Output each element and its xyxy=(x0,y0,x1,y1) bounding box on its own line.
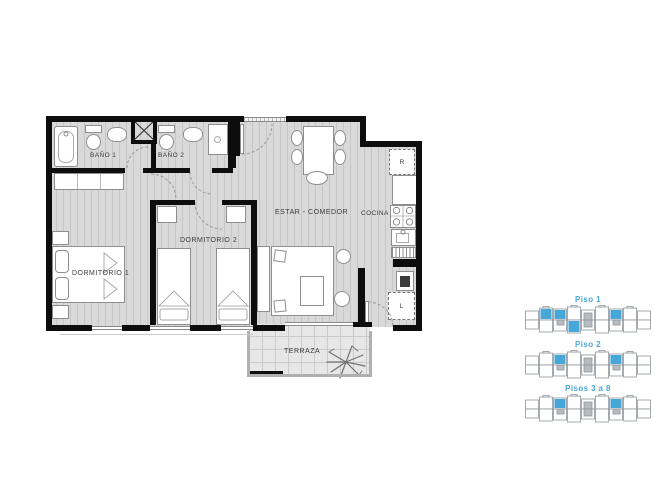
wall-segment xyxy=(46,116,244,122)
side-table xyxy=(334,291,350,307)
wall-segment xyxy=(251,200,257,325)
dining-table xyxy=(303,126,334,175)
floor-key-title: Pisos 3 a 8 xyxy=(524,384,652,393)
floor-key-item: Pisos 3 a 8 xyxy=(524,384,652,429)
wall-segment xyxy=(416,141,422,331)
wall-segment xyxy=(143,168,157,173)
sofa-cushion xyxy=(273,299,286,312)
kitchen-sink-basin xyxy=(396,233,409,243)
terrace-railing xyxy=(247,374,372,377)
toilet-bowl xyxy=(86,134,101,150)
floor-key-item: Piso 1 xyxy=(524,295,652,340)
toilet-bowl xyxy=(159,134,174,150)
wall-segment xyxy=(358,268,365,325)
sink xyxy=(107,127,127,142)
dining-chair xyxy=(306,171,328,185)
wall-segment xyxy=(46,116,52,331)
toilet-tank xyxy=(85,125,102,133)
wall-segment xyxy=(190,325,221,331)
terrace-sliding-door xyxy=(285,322,353,326)
dining-chair xyxy=(334,130,346,146)
kitchen-counter xyxy=(392,175,417,205)
sofa-cushion xyxy=(273,249,287,263)
room-label-bano1: BAÑO 1 xyxy=(90,152,116,159)
wall-segment xyxy=(150,200,195,205)
closet xyxy=(157,206,177,223)
room-label-dormitorio2: DORMITORIO 2 xyxy=(180,237,237,244)
single-bed xyxy=(216,248,250,325)
wall-segment xyxy=(46,325,92,331)
dining-chair xyxy=(334,149,346,165)
wall-segment xyxy=(157,168,190,173)
dining-chair xyxy=(291,149,303,165)
window xyxy=(150,326,190,330)
room-label-estar-comedor: ESTAR - COMEDOR xyxy=(275,209,348,216)
dish-rack xyxy=(391,247,416,258)
water-heater-core xyxy=(400,276,410,287)
wall-segment xyxy=(212,168,233,173)
refrigerator: R xyxy=(389,149,415,175)
wall-segment xyxy=(360,141,422,147)
pillow xyxy=(55,250,69,273)
nightstand xyxy=(52,231,69,245)
stove xyxy=(390,205,416,228)
single-bed xyxy=(157,248,191,325)
room-label-terraza: TERRAZA xyxy=(284,348,320,355)
wall-segment xyxy=(234,122,240,156)
window-sill-line xyxy=(60,334,253,335)
terrace-railing xyxy=(247,331,250,375)
wall-segment xyxy=(286,116,366,122)
wall-segment xyxy=(122,325,150,331)
floor-cutout xyxy=(366,108,430,142)
window xyxy=(221,326,253,330)
closet-door-line xyxy=(100,174,101,189)
door-leaf xyxy=(240,124,244,154)
side-table xyxy=(336,249,351,264)
wall-segment xyxy=(52,168,125,173)
floorplan-page: R L xyxy=(0,0,667,500)
window xyxy=(92,326,122,330)
shower-drain xyxy=(214,136,221,143)
wall-segment xyxy=(150,200,156,325)
toilet-tank xyxy=(158,125,175,133)
closet xyxy=(54,173,124,190)
pillow xyxy=(55,277,69,300)
floor-key-title: Piso 2 xyxy=(524,340,652,349)
coffee-table xyxy=(300,276,324,306)
building-footprint-diagram xyxy=(525,394,651,424)
laundry-space: L xyxy=(388,292,415,320)
building-footprint-diagram xyxy=(525,305,651,335)
floor-key-item: Piso 2 xyxy=(524,340,652,385)
closet-door-line xyxy=(77,174,78,189)
laundry-letter: L xyxy=(389,293,414,319)
wall-segment xyxy=(393,325,422,331)
building-footprint-diagram xyxy=(525,350,651,380)
sofa-back xyxy=(257,246,270,312)
sink xyxy=(183,127,203,142)
room-label-dormitorio1: DORMITORIO 1 xyxy=(72,270,129,277)
room-label-cocina: COCINA xyxy=(361,210,389,217)
wall-segment xyxy=(151,144,156,168)
floor-key-title: Piso 1 xyxy=(524,295,652,304)
dining-chair xyxy=(291,130,303,146)
wall-segment xyxy=(393,259,422,267)
terrace-railing xyxy=(369,331,372,375)
nightstand xyxy=(52,305,69,319)
refrigerator-letter: R xyxy=(390,150,414,174)
wall-segment xyxy=(253,325,285,331)
window xyxy=(244,117,286,122)
closet xyxy=(226,206,246,223)
bathtub-basin xyxy=(58,131,74,163)
room-label-bano2: BAÑO 2 xyxy=(158,152,184,159)
